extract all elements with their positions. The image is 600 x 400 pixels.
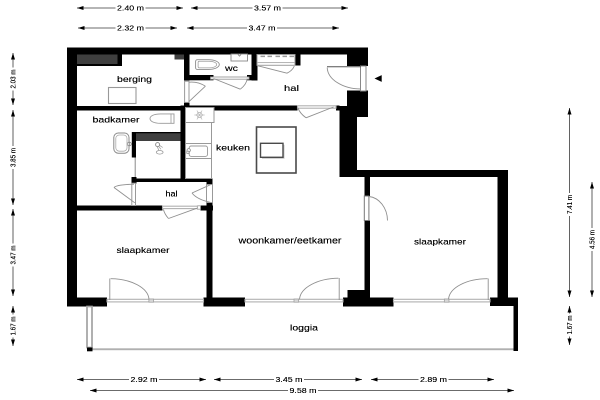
svg-text:badkamer: badkamer [93,115,140,125]
svg-text:loggia: loggia [290,323,318,333]
svg-text:3.47 m: 3.47 m [249,26,276,33]
svg-text:2.03 m: 2.03 m [11,69,18,88]
svg-text:keuken: keuken [216,143,250,153]
svg-text:hal: hal [166,190,178,199]
svg-text:1.67 m: 1.67 m [11,316,18,335]
svg-text:wc: wc [224,63,238,73]
svg-text:woonkamer/eetkamer: woonkamer/eetkamer [237,236,341,246]
svg-text:2.89 m: 2.89 m [420,377,447,384]
svg-text:hal: hal [284,83,299,93]
svg-text:9.58 m: 9.58 m [290,388,317,395]
svg-text:2.92 m: 2.92 m [131,377,158,384]
svg-text:1.67 m: 1.67 m [567,315,574,334]
svg-text:3.47 m: 3.47 m [11,245,18,264]
svg-text:slaapkamer: slaapkamer [414,237,466,247]
svg-text:7.41 m: 7.41 m [567,195,574,214]
svg-text:2.40 m: 2.40 m [117,6,144,13]
svg-text:3.85 m: 3.85 m [11,148,18,167]
svg-text:2.32 m: 2.32 m [117,26,144,33]
svg-text:4.56 m: 4.56 m [590,230,597,249]
svg-text:berging: berging [117,74,152,84]
svg-text:3.45 m: 3.45 m [276,377,303,384]
svg-text:3.57 m: 3.57 m [254,6,281,13]
svg-text:slaapkamer: slaapkamer [117,245,170,255]
